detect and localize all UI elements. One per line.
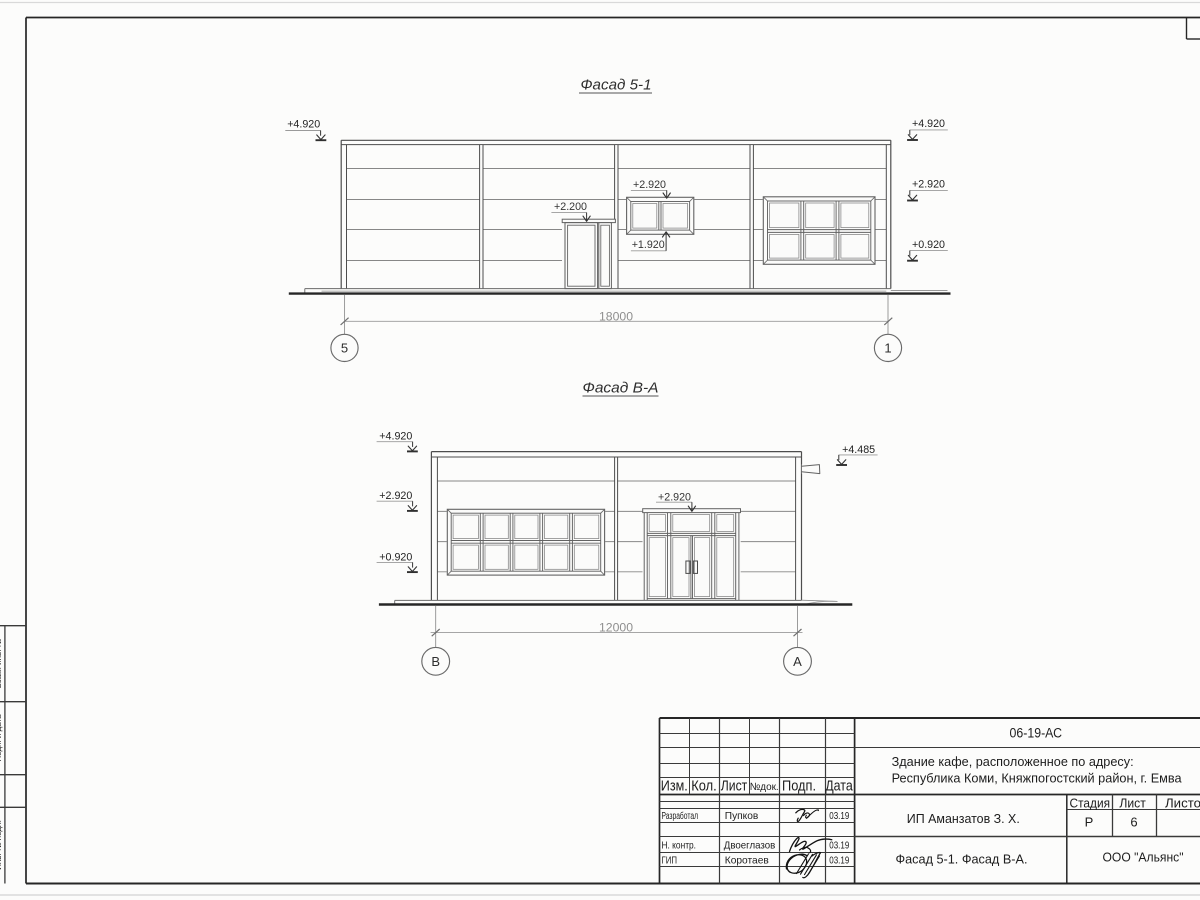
svg-text:ГИП: ГИП bbox=[662, 855, 678, 867]
svg-text:ИП Аманзатов З. Х.: ИП Аманзатов З. Х. bbox=[907, 811, 1020, 826]
svg-text:Республика Коми, Княжпогостски: Республика Коми, Княжпогостский район, г… bbox=[892, 771, 1183, 786]
svg-text:1: 1 bbox=[884, 340, 891, 355]
svg-text:03.19: 03.19 bbox=[829, 840, 849, 851]
svg-text:Фасад 5-1. Фасад В-А.: Фасад 5-1. Фасад В-А. bbox=[896, 851, 1028, 866]
svg-text:06-19-АС: 06-19-АС bbox=[1010, 726, 1063, 741]
svg-text:Подп.: Подп. bbox=[782, 778, 816, 795]
svg-text:+2.920: +2.920 bbox=[912, 179, 945, 191]
svg-text:Изм.: Изм. bbox=[661, 778, 688, 795]
svg-text:№док.: №док. bbox=[750, 781, 779, 793]
svg-text:Листов: Листов bbox=[1165, 796, 1200, 810]
svg-text:5: 5 bbox=[341, 340, 348, 355]
svg-text:Двоеглазов: Двоеглазов bbox=[724, 839, 776, 851]
svg-text:03.19: 03.19 bbox=[829, 811, 849, 822]
svg-text:Взам. инв. №: Взам. инв. № bbox=[0, 638, 3, 688]
svg-text:+2.920: +2.920 bbox=[379, 490, 412, 502]
svg-text:Кол.: Кол. bbox=[691, 778, 717, 795]
svg-text:Лист: Лист bbox=[721, 778, 748, 795]
svg-text:Н. контр.: Н. контр. bbox=[662, 840, 697, 851]
svg-text:В: В bbox=[431, 654, 440, 669]
svg-text:12000: 12000 bbox=[599, 623, 633, 635]
svg-text:+0.920: +0.920 bbox=[379, 551, 412, 563]
svg-text:Разработал: Разработал bbox=[662, 810, 699, 822]
svg-text:18000: 18000 bbox=[599, 311, 633, 323]
svg-text:+1.920: +1.920 bbox=[632, 239, 665, 251]
svg-text:Стадия: Стадия bbox=[1070, 796, 1111, 810]
svg-text:Дата: Дата bbox=[825, 778, 853, 795]
svg-text:Пупков: Пупков bbox=[725, 810, 759, 822]
svg-text:+4.920: +4.920 bbox=[287, 119, 320, 131]
svg-text:Лист: Лист bbox=[1119, 796, 1146, 810]
svg-text:+2.920: +2.920 bbox=[658, 491, 691, 503]
svg-text:А: А bbox=[793, 654, 802, 669]
svg-text:+4.485: +4.485 bbox=[842, 444, 875, 456]
svg-text:6: 6 bbox=[1130, 815, 1137, 830]
svg-text:Р: Р bbox=[1085, 815, 1094, 830]
svg-text:+4.920: +4.920 bbox=[912, 118, 945, 130]
svg-text:ООО "Альянс": ООО "Альянс" bbox=[1103, 850, 1184, 865]
svg-text:+2.920: +2.920 bbox=[633, 179, 666, 191]
svg-text:Фасад 5-1: Фасад 5-1 bbox=[581, 78, 652, 94]
svg-text:Здание кафе, расположенное по: Здание кафе, расположенное по адресу: bbox=[892, 754, 1134, 769]
svg-text:03.19: 03.19 bbox=[829, 856, 849, 867]
svg-text:Подп. и дата: Подп. и дата bbox=[0, 714, 3, 762]
svg-text:Инв. № подл.: Инв. № подл. bbox=[0, 820, 3, 870]
svg-text:Фасад В-А: Фасад В-А bbox=[583, 380, 659, 396]
svg-text:+0.920: +0.920 bbox=[912, 239, 945, 251]
svg-text:+4.920: +4.920 bbox=[379, 431, 412, 443]
svg-text:Коротаев: Коротаев bbox=[725, 855, 769, 867]
svg-text:+2.200: +2.200 bbox=[554, 201, 587, 213]
